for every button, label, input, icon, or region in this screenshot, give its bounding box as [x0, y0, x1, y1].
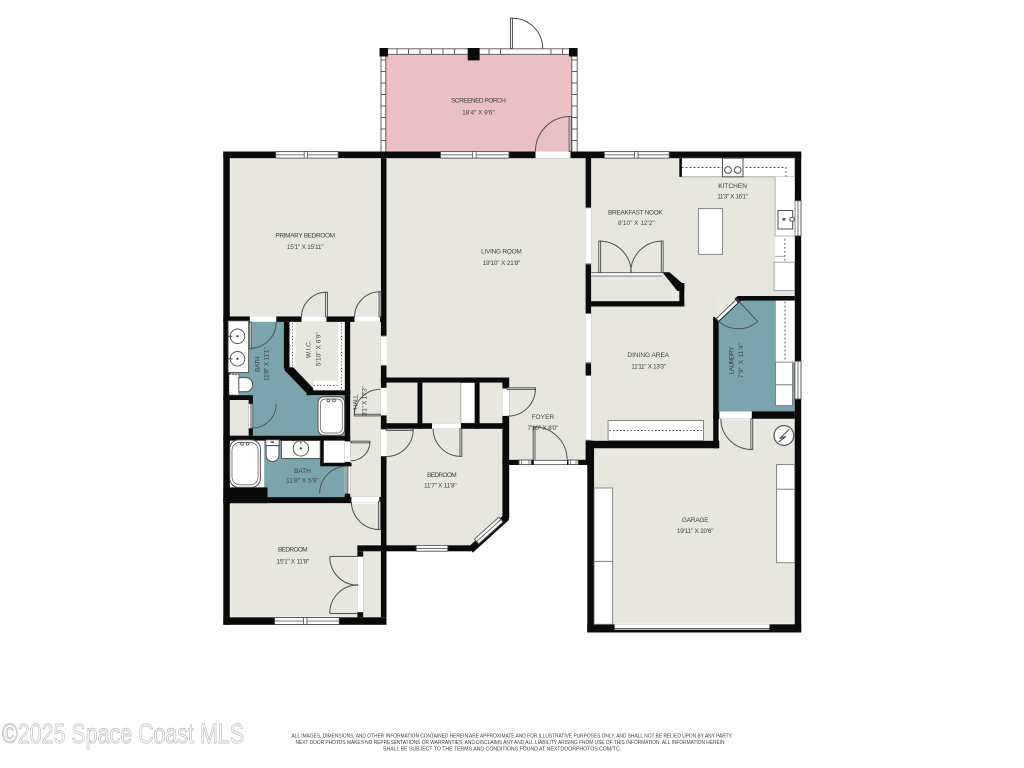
svg-text:BATH: BATH: [255, 356, 262, 372]
svg-text:11'11" X 13'3": 11'11" X 13'3": [631, 364, 666, 371]
svg-text:SCREENED PORCH: SCREENED PORCH: [451, 98, 506, 105]
svg-text:LAUNDRY: LAUNDRY: [729, 346, 736, 374]
svg-text:11'8" X 11'1": 11'8" X 11'1": [264, 347, 271, 381]
svg-text:5'10" X 6'9": 5'10" X 6'9": [316, 332, 323, 366]
svg-text:NEXT DOOR PHOTOS MAKES NO REPR: NEXT DOOR PHOTOS MAKES NO REPRESENTATION…: [296, 740, 725, 746]
svg-text:SHALL BE SUBJECT TO THE TERMS: SHALL BE SUBJECT TO THE TERMS AND CONDIT…: [383, 747, 621, 753]
svg-text:W.I.C.: W.I.C.: [306, 340, 313, 358]
svg-text:KITCHEN: KITCHEN: [718, 183, 747, 190]
svg-text:15'1" X 11'8": 15'1" X 11'8": [277, 559, 310, 566]
svg-text:19'11" X 20'6": 19'11" X 20'6": [677, 528, 714, 535]
svg-text:ALL IMAGES, DIMENSIONS, AND OT: ALL IMAGES, DIMENSIONS, AND OTHER INFORM…: [292, 734, 733, 740]
svg-text:7'10" X 8'0": 7'10" X 8'0": [528, 425, 559, 432]
svg-text:GARAGE: GARAGE: [682, 517, 709, 524]
svg-text:BEDROOM: BEDROOM: [427, 472, 457, 479]
svg-text:DINING AREA: DINING AREA: [627, 352, 669, 359]
svg-text:8'10" X 12'2": 8'10" X 12'2": [618, 220, 655, 227]
svg-text:15'1" X 15'11": 15'1" X 15'11": [287, 244, 324, 251]
svg-text:FOYER: FOYER: [532, 414, 555, 421]
svg-text:BEDROOM: BEDROOM: [278, 547, 308, 554]
svg-text:©2025 Space Coast MLS: ©2025 Space Coast MLS: [2, 718, 244, 749]
svg-text:11'7" X 11'8": 11'7" X 11'8": [424, 482, 457, 489]
svg-text:7'9" X 11'4": 7'9" X 11'4": [738, 342, 745, 378]
svg-text:BATH: BATH: [294, 468, 311, 475]
svg-text:18'4" X 9'6": 18'4" X 9'6": [462, 110, 495, 117]
svg-text:LIVING ROOM: LIVING ROOM: [481, 248, 522, 255]
svg-text:11'8" X 5'9": 11'8" X 5'9": [286, 478, 319, 485]
svg-text:HALL: HALL: [353, 394, 360, 409]
svg-text:11'3" X 16'1": 11'3" X 16'1": [717, 194, 748, 201]
svg-text:BREAKFAST NOOK: BREAKFAST NOOK: [608, 210, 663, 217]
svg-text:19'10" X 21'8": 19'10" X 21'8": [483, 260, 521, 267]
svg-text:PRIMARY BEDROOM: PRIMARY BEDROOM: [275, 232, 335, 239]
svg-text:3'1" X 17'3": 3'1" X 17'3": [362, 386, 369, 416]
